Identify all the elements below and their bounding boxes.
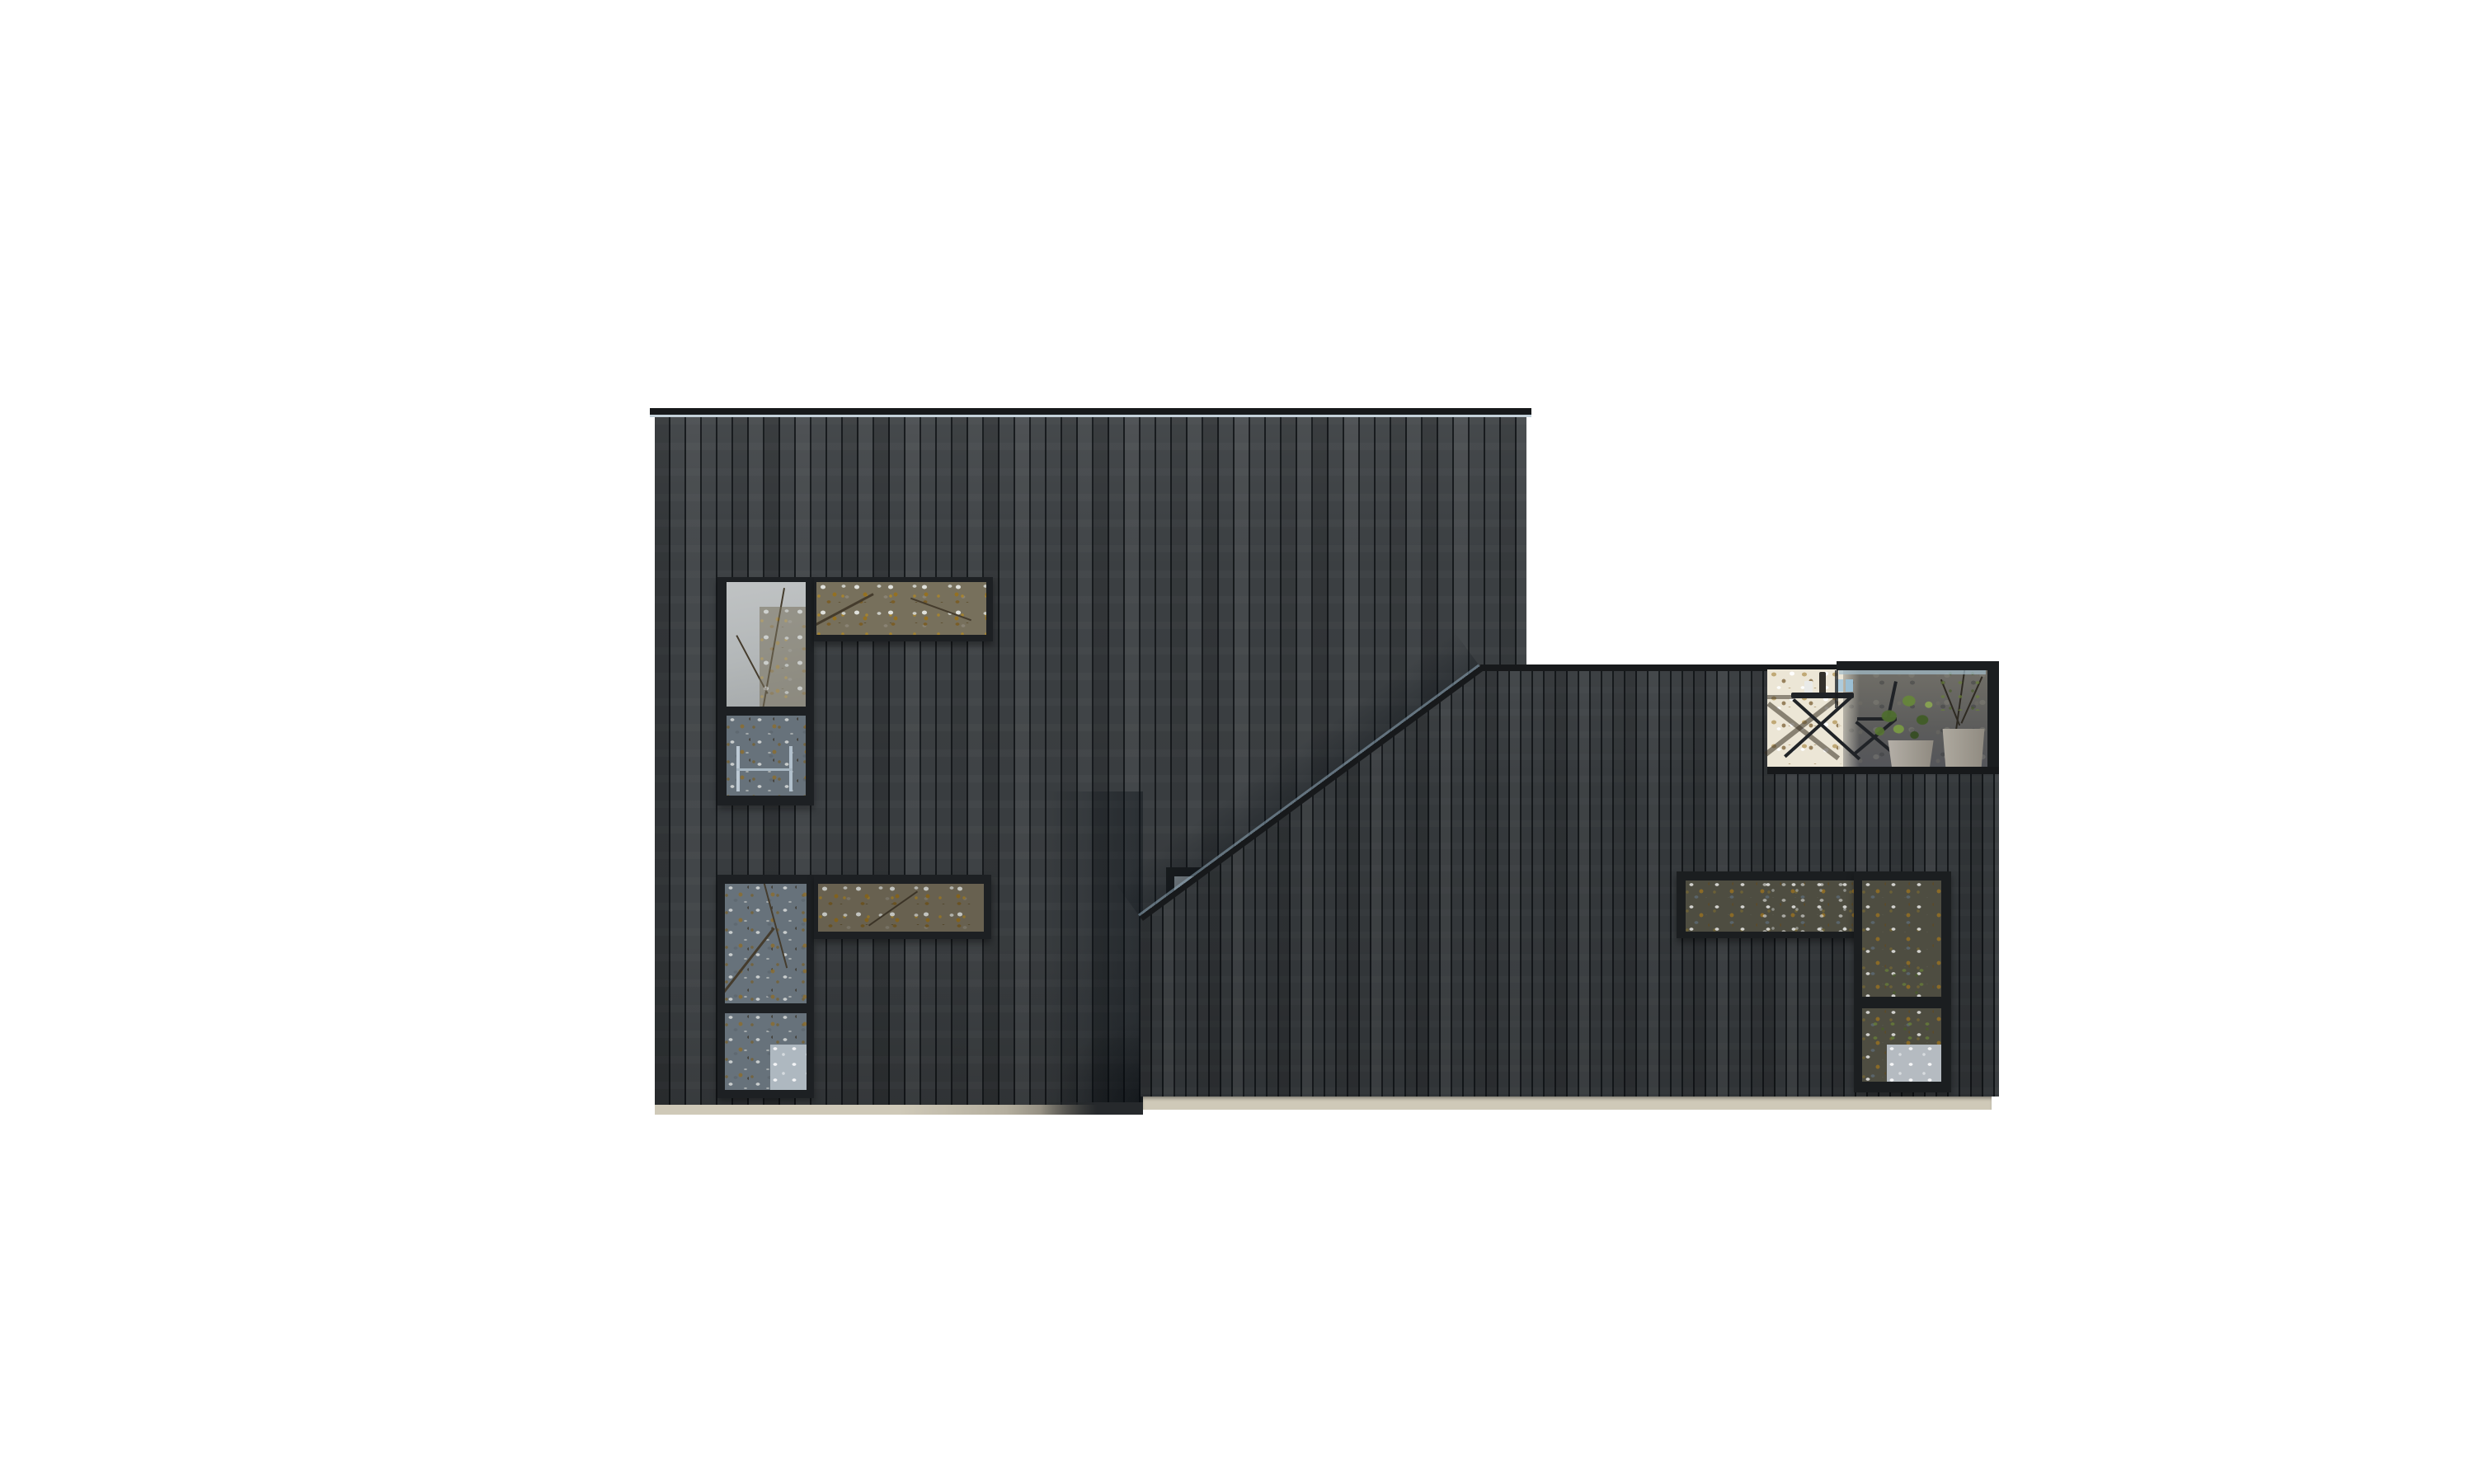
cast-shadow-deep — [1037, 1006, 1143, 1105]
branch-icon — [725, 927, 775, 1003]
lower-window-lower-pane — [725, 1013, 807, 1090]
branch-icon — [868, 891, 918, 927]
terrace-glass-joint — [1835, 670, 1838, 708]
plinth-door-shadow — [1041, 1102, 1143, 1115]
terrace-handrail — [1837, 661, 1999, 670]
bright-wall-reflection — [770, 1045, 807, 1090]
lower-window-clerestory-pane — [818, 884, 984, 932]
terrace-glass-glint — [1839, 670, 1986, 674]
plinth-low — [1143, 1097, 1992, 1110]
green-foliage — [1870, 1020, 1933, 1045]
table-shadow — [1767, 695, 1794, 699]
table-cup-white — [1804, 681, 1813, 693]
green-foliage — [1882, 966, 1936, 997]
bright-speckle — [1760, 881, 1854, 932]
upper-window-clerestory-pane — [816, 582, 986, 635]
terrace-corner-post — [1987, 661, 1999, 768]
right-window-upper-pane — [1862, 881, 1941, 997]
branch-icon — [763, 884, 788, 968]
elevation-render — [0, 0, 2474, 1484]
terrace-pot-beige — [1941, 729, 1986, 768]
main-roof-flashing — [650, 408, 1531, 415]
railing-reflection — [736, 768, 793, 771]
table-glass-blue — [1846, 679, 1853, 692]
upper-window-lower-pane — [727, 716, 806, 796]
bright-wall-reflection — [1887, 1045, 1941, 1082]
table-bottle — [1819, 672, 1826, 693]
leaf-reflection — [760, 607, 806, 707]
branch-icon — [816, 593, 874, 628]
right-window-lower-pane — [1862, 1008, 1941, 1082]
terrace-plant-leafy — [1865, 674, 1945, 750]
right-window-clerestory-pane — [1686, 881, 1854, 932]
bistro-table-top — [1791, 693, 1854, 698]
branch-icon — [910, 598, 971, 622]
terrace-sill — [1767, 767, 1999, 774]
terrace-pot-grey — [1886, 740, 1935, 768]
lower-window-upper-pane — [725, 884, 807, 1003]
upper-window-sky-pane — [727, 582, 806, 707]
